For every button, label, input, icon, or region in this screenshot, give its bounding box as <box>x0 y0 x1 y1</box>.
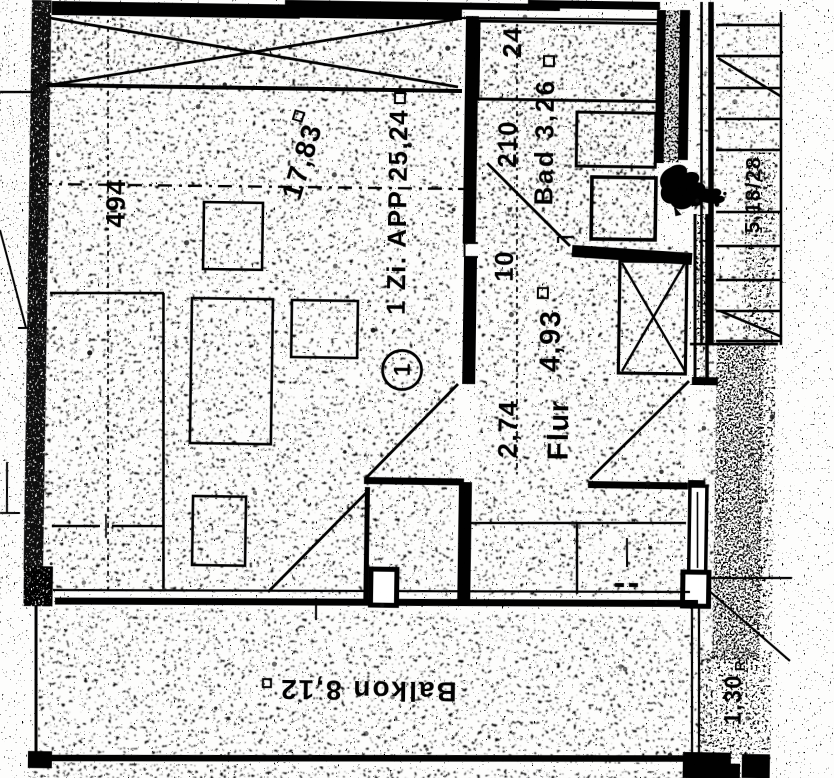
svg-text:Bad 3,26: Bad 3,26 <box>528 78 560 205</box>
svg-text:1,30: 1,30 <box>720 674 748 725</box>
svg-text:10: 10 <box>489 250 519 282</box>
svg-text:1: 1 <box>389 363 415 376</box>
svg-text:1 Zi. APP 25,24: 1 Zi. APP 25,24 <box>380 109 413 315</box>
svg-text:494: 494 <box>101 178 132 228</box>
svg-text:24: 24 <box>497 26 527 58</box>
svg-text:R: R <box>732 660 749 671</box>
svg-text:Flur: Flur <box>543 399 576 460</box>
svg-text:210: 210 <box>492 120 523 168</box>
svg-text:5,18/28: 5,18/28 <box>741 156 765 233</box>
svg-text:2,74: 2,74 <box>493 399 524 458</box>
svg-text:Balkon 8,12: Balkon 8,12 <box>279 674 457 708</box>
svg-text:4,93: 4,93 <box>535 309 568 372</box>
